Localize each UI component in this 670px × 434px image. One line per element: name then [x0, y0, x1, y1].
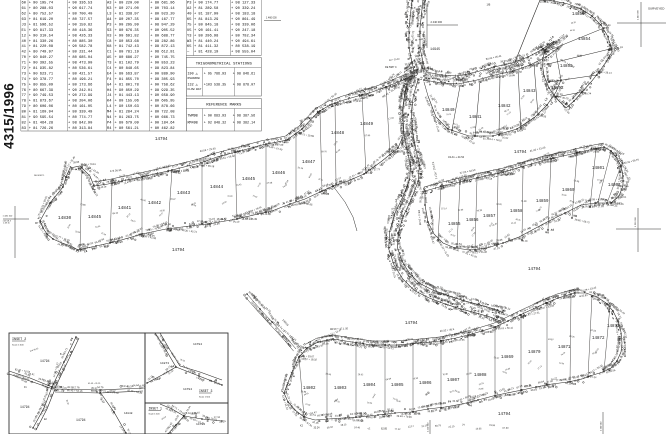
svg-text:14842: 14842: [498, 105, 511, 109]
svg-text:+ 92 848.32: + 92 848.32: [204, 122, 226, 126]
svg-text:E1: E1: [22, 29, 27, 33]
svg-text:43.12: 43.12: [452, 400, 459, 403]
svg-text:+ 90 850.29: + 90 850.29: [115, 89, 139, 93]
svg-text:+ 81 187.90: + 81 187.90: [194, 13, 218, 17]
svg-text:10.55: 10.55: [475, 427, 482, 430]
svg-text:+ 80 561.21: + 80 561.21: [115, 127, 140, 131]
svg-text:1 440 000: 1 440 000: [638, 9, 640, 20]
svg-text:24.46: 24.46: [354, 426, 361, 429]
svg-text:52.10: 52.10: [214, 416, 221, 419]
svg-text:K1 L1: K1 L1: [122, 385, 129, 388]
svg-text:+ 90 336.53: + 90 336.53: [68, 2, 92, 6]
svg-text:+ 90 703.14: + 90 703.14: [150, 7, 175, 11]
svg-text:1 460 000: 1 460 000: [266, 16, 277, 19]
svg-text:40: 40: [187, 13, 191, 17]
svg-text:Scale 1:500: Scale 1:500: [199, 397, 211, 399]
svg-text:+ 90 392.55: + 90 392.55: [29, 62, 53, 66]
svg-text:77: 77: [22, 94, 26, 98]
svg-text:14841: 14841: [469, 116, 482, 120]
svg-text:+ 81 289.58: + 81 289.58: [194, 7, 218, 11]
svg-text:+ 90 195.74: + 90 195.74: [29, 2, 54, 6]
svg-text:57.95: 57.95: [365, 135, 371, 137]
svg-text:39.62: 39.62: [162, 166, 169, 169]
svg-text:+ 98 872.13: + 98 872.13: [150, 45, 174, 49]
svg-text:R6: R6: [469, 82, 473, 86]
svg-text:79: 79: [22, 105, 26, 109]
svg-text:14804: 14804: [363, 384, 376, 388]
svg-text:E4: E4: [107, 73, 112, 77]
svg-text:+ 81 284.24: + 81 284.24: [115, 111, 140, 115]
svg-text:+ 90 745.75: + 90 745.75: [150, 56, 174, 60]
svg-text:15.58 + 42.24: 15.58 + 42.24: [589, 198, 605, 201]
svg-text:+ 81 464.28: + 81 464.28: [29, 122, 53, 126]
svg-text:TWM9B: TWM9B: [188, 115, 198, 119]
svg-text:14860: 14860: [562, 189, 575, 193]
svg-text:+ 80 418.36: + 80 418.36: [68, 29, 92, 33]
svg-text:14872: 14872: [592, 337, 605, 341]
svg-text:18.69 + 46.49: 18.69 + 46.49: [242, 218, 258, 221]
svg-text:+ 80 923.20: + 80 923.20: [150, 13, 174, 17]
svg-text:40: 40: [22, 40, 26, 44]
svg-text:P3: P3: [107, 23, 111, 27]
svg-text:+ 80 792.34: + 80 792.34: [231, 34, 256, 38]
svg-text:+ 81 742.43: + 81 742.43: [115, 45, 139, 49]
svg-text:FLOW BAY: FLOW BAY: [188, 88, 202, 91]
svg-text:20.57 + 18.32: 20.57 + 18.32: [301, 358, 317, 362]
svg-text:54.76: 54.76: [97, 386, 104, 389]
svg-text:Scale 1:500: Scale 1:500: [12, 345, 24, 347]
svg-text:75.10: 75.10: [233, 220, 240, 224]
svg-text:74: 74: [22, 78, 27, 82]
svg-text:+ 81 935.82: + 81 935.82: [29, 67, 53, 71]
svg-text:+ 90 242.01: + 90 242.01: [68, 89, 93, 93]
svg-text:14849: 14849: [360, 122, 374, 127]
svg-text:14830: 14830: [58, 216, 72, 221]
svg-text:+ 80 885.30: + 80 885.30: [68, 40, 92, 44]
svg-text:62: 62: [22, 13, 26, 17]
svg-text:+ 80 688.77: + 80 688.77: [150, 34, 174, 38]
svg-text:1 48 15: 1 48 15: [3, 223, 11, 225]
svg-text:63: 63: [22, 18, 26, 22]
svg-text:+ 80 845.18: + 80 845.18: [194, 23, 218, 27]
svg-text:+ 80 679.09: + 80 679.09: [115, 122, 139, 126]
svg-text:14844: 14844: [210, 185, 224, 190]
svg-text:+ 98 846.61: + 98 846.61: [233, 73, 255, 77]
svg-text:+ 98 387.56: + 98 387.56: [233, 115, 255, 119]
svg-text:+ 80 296.98: + 80 296.98: [194, 34, 218, 38]
svg-text:12.78: 12.78: [73, 386, 80, 389]
svg-text:J3: J3: [22, 23, 26, 27]
svg-text:A6: A6: [551, 228, 555, 232]
svg-text:+ 81 330.26: + 81 330.26: [29, 40, 53, 44]
svg-text:14794: 14794: [20, 405, 30, 409]
svg-text:+ 81 801.78: + 81 801.78: [115, 83, 139, 87]
svg-text:+ 80 855.09: + 80 855.09: [29, 83, 53, 87]
svg-text:+ 80 538.19: + 80 538.19: [231, 45, 255, 49]
svg-text:+ 98 282.86: + 98 282.86: [150, 40, 174, 44]
svg-text:+ 80 774.77: + 80 774.77: [68, 116, 92, 120]
svg-text:+ 80 752.57: + 80 752.57: [29, 13, 53, 17]
svg-text:+ 81 263.75: + 81 263.75: [115, 116, 139, 120]
svg-text:+ 80 288.03: + 80 288.03: [29, 7, 53, 11]
svg-text:+ 90 184.64: + 90 184.64: [150, 122, 175, 126]
svg-text:G4: G4: [107, 83, 112, 87]
svg-text:+ 98 127.33: + 98 127.33: [231, 2, 255, 6]
svg-text:14801: 14801: [592, 167, 605, 171]
svg-text:14857: 14857: [483, 215, 496, 219]
svg-text:+ 90 339.24: + 90 339.24: [231, 7, 256, 11]
svg-text:14870: 14870: [528, 351, 541, 355]
svg-text:M4: M4: [107, 111, 112, 115]
svg-text:+ 98 426.33: + 98 426.33: [68, 34, 92, 38]
svg-text:72: 72: [22, 67, 26, 71]
svg-text:41: 41: [22, 45, 27, 49]
svg-text:+ 90 691.82: + 90 691.82: [115, 34, 139, 38]
svg-text:14794: 14794: [172, 249, 185, 253]
svg-text:+ 90 758.62: + 90 758.62: [150, 83, 174, 87]
svg-text:14848: 14848: [331, 131, 345, 136]
svg-text:+ 80 685.04: + 80 685.04: [68, 56, 93, 60]
svg-text:+ 81 813.29: + 81 813.29: [194, 18, 218, 22]
svg-text:14843: 14843: [523, 90, 536, 94]
svg-text:S3: S3: [107, 29, 111, 33]
svg-text:1 400 000: 1 400 000: [433, 221, 435, 232]
svg-text:+ 90 295.99: + 90 295.99: [115, 23, 139, 27]
svg-text:14794: 14794: [183, 388, 192, 391]
svg-text:+ 90 159.82: + 90 159.82: [68, 23, 92, 27]
svg-text:+ 90 150.63: + 90 150.63: [115, 105, 139, 109]
svg-text:+ 81 160.94: + 81 160.94: [29, 111, 54, 115]
svg-text:+ 90 272.99: + 90 272.99: [68, 94, 92, 98]
svg-text:14794: 14794: [40, 359, 50, 363]
svg-text:+ 90 889.90: + 90 889.90: [150, 73, 174, 77]
svg-text:+ 90 817.33: + 90 817.33: [29, 29, 53, 33]
svg-text:+ 81 338.97: + 81 338.97: [115, 13, 139, 17]
svg-text:INSET 2: INSET 2: [12, 338, 26, 342]
svg-text:+ 90 310.54: + 90 310.54: [29, 34, 54, 38]
svg-text:+ 80 536.61: + 80 536.61: [68, 67, 93, 71]
svg-text:14869: 14869: [501, 356, 514, 360]
svg-text:C8: C8: [107, 40, 111, 44]
svg-text:L4: L4: [107, 105, 112, 109]
svg-text:+ 81 855.70: + 81 855.70: [115, 78, 139, 82]
svg-text:1 440 500: 1 440 500: [427, 422, 429, 432]
svg-text:80: 80: [22, 111, 26, 115]
svg-text:+ 90 595.54: + 90 595.54: [29, 116, 54, 120]
svg-text:14794: 14794: [528, 268, 541, 272]
svg-text:+ 80 421.57: + 80 421.57: [68, 73, 92, 77]
svg-text:72.41: 72.41: [593, 151, 600, 154]
svg-text:17.77 + 15.34: 17.77 + 15.34: [475, 245, 491, 248]
svg-text:K4: K4: [107, 100, 112, 104]
svg-text:14842: 14842: [148, 201, 162, 206]
svg-text:A3: A3: [107, 2, 111, 6]
svg-text:4315/1996: 4315/1996: [2, 83, 17, 149]
svg-text:+ 90 749.53: + 90 749.53: [29, 94, 53, 98]
svg-text:14859: 14859: [536, 200, 549, 204]
svg-text:+ 98 878.07: + 98 878.07: [233, 84, 255, 88]
svg-text:+ 80 606.06: + 80 606.06: [29, 105, 53, 109]
svg-text:K8: K8: [107, 45, 111, 49]
svg-text:14806: 14806: [419, 382, 432, 386]
svg-text:14805: 14805: [391, 384, 404, 388]
svg-text:+ 80 700.40: + 80 700.40: [68, 13, 92, 17]
svg-text:43.52: 43.52: [109, 390, 116, 393]
svg-text:45.72: 45.72: [422, 21, 425, 28]
svg-text:+ 98 823.84: + 98 823.84: [150, 67, 175, 71]
svg-text:+ 90 853.23: + 90 853.23: [150, 62, 174, 66]
svg-text:+ 80 339.49: + 80 339.49: [68, 111, 92, 115]
svg-text:INSET 1: INSET 1: [149, 407, 162, 411]
svg-text:42: 42: [22, 51, 26, 55]
svg-text:78: 78: [22, 100, 26, 104]
svg-text:14794: 14794: [76, 418, 86, 422]
svg-text:K5: K5: [187, 18, 191, 22]
svg-text:T3: T3: [107, 62, 111, 66]
svg-text:14807: 14807: [447, 379, 460, 383]
svg-text:77.43: 77.43: [525, 385, 532, 388]
svg-text:+ 90 271.00: + 90 271.00: [115, 7, 139, 11]
svg-text:+ 81 102.79: + 81 102.79: [115, 62, 139, 66]
svg-text:+ 90 378.77: + 90 378.77: [29, 78, 53, 82]
svg-text:+ 90 161.41: + 90 161.41: [194, 29, 219, 33]
svg-text:29.92: 29.92: [358, 374, 364, 376]
svg-text:+ 80 681.96: + 80 681.96: [150, 2, 174, 6]
svg-text:14855: 14855: [448, 223, 461, 227]
svg-text:J4: J4: [107, 94, 112, 98]
svg-text:+ 98 204.06: + 98 204.06: [68, 100, 92, 104]
svg-text:36.85: 36.85: [143, 172, 150, 175]
svg-text:+ 80 749.97: + 80 749.97: [29, 51, 53, 55]
svg-text:+ 90 174.77: + 90 174.77: [194, 2, 218, 6]
svg-text:+ 81 596.52: + 81 596.52: [29, 23, 53, 27]
svg-text:14803: 14803: [334, 387, 347, 391]
svg-text:+ 90 247.18: + 90 247.18: [231, 29, 255, 33]
svg-text:32.35: 32.35: [408, 102, 411, 109]
svg-text:+ 80 878.66: + 80 878.66: [150, 105, 174, 109]
svg-text:14841: 14841: [118, 206, 132, 211]
svg-text:68.19: 68.19: [531, 388, 538, 392]
svg-text:K5: K5: [187, 45, 191, 49]
svg-text:14873: 14873: [160, 362, 169, 365]
svg-text:14871: 14871: [558, 346, 571, 350]
svg-text:DEI 4987 1: DEI 4987 1: [34, 175, 45, 177]
svg-text:+ 98 382.14: + 98 382.14: [233, 122, 255, 126]
svg-text:+ 90 683.93: + 90 683.93: [204, 115, 226, 119]
svg-text:43 A1 + 44.54: 43 A1 + 44.54: [448, 155, 465, 159]
svg-text:A2: A2: [187, 7, 191, 11]
svg-text:132 △: 132 △: [188, 84, 199, 88]
svg-text:1/B: 1/B: [487, 4, 491, 7]
svg-text:+ 98 339.06: + 98 339.06: [231, 23, 255, 27]
svg-text:60: 60: [22, 2, 26, 6]
svg-text:71: 71: [22, 62, 27, 66]
svg-text:Scale 1:500: Scale 1:500: [149, 414, 161, 416]
svg-text:RM49B: RM49B: [188, 122, 198, 126]
svg-text:39.94: 39.94: [594, 204, 601, 207]
svg-text:+ 80 196.21: + 80 196.21: [68, 78, 93, 82]
svg-text:62.85: 62.85: [381, 427, 388, 430]
svg-text:R4: R4: [107, 127, 112, 131]
svg-text:+ 80 173.66: + 80 173.66: [68, 83, 92, 87]
svg-text:+ 95 786.93: + 95 786.93: [204, 73, 226, 77]
svg-text:+ 80 686.27: + 80 686.27: [115, 56, 139, 60]
svg-text:190 △: 190 △: [188, 73, 199, 77]
svg-text:70: 70: [22, 56, 26, 60]
svg-text:14945: 14945: [430, 48, 440, 52]
svg-text:+ 80 462.82: + 80 462.82: [150, 127, 174, 131]
svg-text:+ 90 494.61: + 90 494.61: [231, 40, 256, 44]
svg-text:+ 80 220.00: + 80 220.00: [115, 2, 139, 6]
svg-text:14847: 14847: [302, 160, 316, 165]
svg-text:+ 98 947.29: + 98 947.29: [150, 23, 174, 27]
svg-text:75: 75: [187, 23, 191, 27]
svg-text:14858: 14858: [510, 210, 523, 214]
svg-text:+ 90 207.35: + 90 207.35: [115, 18, 139, 22]
svg-text:78.50 + 77.10: 78.50 + 77.10: [379, 410, 395, 413]
svg-text:2 440 000: 2 440 000: [431, 20, 443, 24]
svg-text:67.60: 67.60: [502, 427, 509, 430]
svg-text:24.51: 24.51: [310, 414, 317, 417]
svg-text:+103 538.35: +103 538.35: [204, 84, 226, 88]
svg-text:+ 90 658.90: + 90 658.90: [150, 94, 174, 98]
svg-text:+ 80 667.39: + 80 667.39: [29, 89, 53, 93]
svg-text:C1: C1: [107, 51, 112, 55]
svg-text:+ 80 722.08: + 80 722.08: [150, 111, 174, 115]
svg-text:1 300 500: 1 300 500: [600, 421, 602, 431]
svg-text:H4: H4: [107, 89, 112, 93]
svg-text:14794: 14794: [155, 138, 168, 142]
svg-text:68.29: 68.29: [322, 343, 329, 346]
svg-text:41.43 + 31.25: 41.43 + 31.25: [88, 383, 101, 385]
svg-text:14802: 14802: [303, 387, 316, 391]
svg-text:+ 80 727.57: + 80 727.57: [68, 18, 92, 22]
svg-text:14846: 14846: [272, 171, 286, 176]
svg-text:+ 98 555.04: + 98 555.04: [231, 51, 256, 55]
svg-text:REFERENCE MARKS: REFERENCE MARKS: [206, 104, 242, 108]
svg-text:+ 81 443.13: + 81 443.13: [115, 94, 139, 98]
svg-text:L3: L3: [107, 13, 111, 17]
svg-text:1 300 000: 1 300 000: [635, 216, 637, 227]
svg-text:52.82: 52.82: [505, 394, 512, 397]
svg-text:+ 81 220.08: + 81 220.08: [29, 45, 53, 49]
svg-text:27.56: 27.56: [267, 182, 273, 184]
svg-text:+ 98 167.77: + 98 167.77: [150, 18, 174, 22]
svg-text:33.24: 33.24: [314, 427, 321, 430]
svg-text:+ 80 231.44: + 80 231.44: [68, 51, 93, 55]
svg-text:K3: K3: [107, 7, 111, 11]
svg-text:+ 90 853.68: + 90 853.68: [115, 40, 139, 44]
svg-text:TRIGONOMETRICAL STATIONS: TRIGONOMETRICAL STATIONS: [196, 63, 253, 67]
svg-text:+ 80 155.06: + 80 155.06: [115, 100, 139, 104]
svg-text:33.23: 33.23: [427, 410, 434, 413]
svg-text:68.20: 68.20: [539, 64, 542, 71]
svg-text:14794: 14794: [405, 322, 418, 326]
svg-text:+ 98 612.91: + 98 612.91: [150, 51, 175, 55]
svg-text:A5: A5: [107, 56, 111, 60]
svg-text:+ 90 861.49: + 90 861.49: [231, 18, 255, 22]
svg-text:14794: 14794: [193, 343, 202, 346]
svg-text:P4: P4: [107, 122, 112, 126]
svg-text:31.94: 31.94: [489, 424, 496, 427]
svg-text:81: 81: [22, 116, 27, 120]
svg-text:+ 80 781.19: + 80 781.19: [115, 51, 139, 55]
svg-text:1 440 100: 1 440 100: [3, 216, 14, 218]
svg-text:14848: 14848: [124, 412, 133, 415]
svg-text:35.19: 35.19: [521, 240, 528, 243]
svg-text:+ 80 161.05: + 80 161.05: [68, 105, 92, 109]
svg-text:Y3: Y3: [187, 34, 191, 38]
svg-text:30.79: 30.79: [435, 424, 442, 428]
svg-text:INSET 3: INSET 3: [199, 389, 212, 393]
svg-text:+ 90 582.78: + 90 582.78: [68, 45, 92, 49]
svg-text:U5: U5: [187, 29, 191, 33]
svg-text:U3: U3: [107, 34, 111, 38]
svg-text:+ 98 305.93: + 98 305.93: [150, 78, 174, 82]
svg-text:73: 73: [22, 73, 26, 77]
svg-text:14840: 14840: [442, 109, 455, 113]
svg-text:+ 81 619.20: + 81 619.20: [29, 18, 53, 22]
svg-text:76: 76: [22, 89, 26, 93]
svg-text:F4: F4: [107, 78, 112, 82]
svg-text:69.76: 69.76: [321, 151, 327, 153]
svg-text:75: 75: [22, 83, 26, 87]
svg-text:+ 80 666.73: + 80 666.73: [150, 116, 174, 120]
svg-text:+ 81 873.67: + 81 873.67: [29, 100, 53, 104]
svg-text:+ 81 428.19: + 81 428.19: [194, 51, 218, 55]
svg-text:83: 83: [22, 127, 26, 131]
svg-text:C4: C4: [107, 67, 112, 71]
svg-text:DE 5987 C: DE 5987 C: [385, 66, 397, 69]
svg-text:61.76: 61.76: [414, 413, 421, 416]
svg-text:77.22: 77.22: [394, 428, 401, 431]
svg-text:98.50 + 47.1 50: 98.50 + 47.1 50: [330, 326, 349, 331]
svg-text:+ 81 440.24: + 81 440.24: [194, 40, 219, 44]
svg-text:W3: W3: [187, 40, 191, 44]
svg-text:+ 80 676.35: + 80 676.35: [115, 29, 139, 33]
svg-text:14794: 14794: [498, 413, 511, 417]
svg-text:12: 12: [22, 34, 26, 38]
svg-text:+ 80 605.95: + 80 605.95: [150, 100, 174, 104]
svg-text:+ 90 840.27: + 90 840.27: [29, 56, 53, 60]
svg-text:14845: 14845: [242, 177, 256, 182]
svg-text:14856: 14856: [466, 219, 479, 223]
svg-text:A4: A4: [107, 18, 112, 22]
svg-text:14808: 14808: [474, 374, 487, 378]
svg-text:+ 98 842.90: + 98 842.90: [68, 122, 92, 126]
svg-text:+ 90 905.52: + 90 905.52: [150, 29, 174, 33]
svg-text:49.63: 49.63: [404, 159, 407, 166]
svg-text:+ 90 617.74: + 90 617.74: [68, 7, 93, 11]
svg-text:+ 98 183.18: + 98 183.18: [231, 13, 255, 17]
svg-text:+ 80 563.87: + 80 563.87: [115, 73, 139, 77]
svg-text:P3: P3: [187, 2, 191, 6]
svg-text:14854: 14854: [578, 38, 591, 42]
svg-text:14794: 14794: [196, 423, 205, 426]
svg-text:14843: 14843: [177, 191, 191, 196]
svg-text:+ 98 929.35: + 98 929.35: [150, 89, 174, 93]
svg-text:+ 90 623.71: + 90 623.71: [29, 73, 54, 77]
svg-text:+ 80 313.84: + 80 313.84: [68, 127, 93, 131]
svg-text:+ 81 726.26: + 81 726.26: [29, 127, 53, 131]
svg-text:82: 82: [22, 122, 26, 126]
svg-text:+ 81 411.32: + 81 411.32: [194, 45, 218, 49]
svg-text:+ 98 473.90: + 98 473.90: [68, 62, 92, 66]
svg-text:14845: 14845: [88, 215, 102, 220]
svg-text:SURVEYED: SURVEYED: [648, 7, 665, 11]
svg-text:N4: N4: [107, 116, 112, 120]
svg-text:+ 80 848.65: + 80 848.65: [115, 67, 139, 71]
